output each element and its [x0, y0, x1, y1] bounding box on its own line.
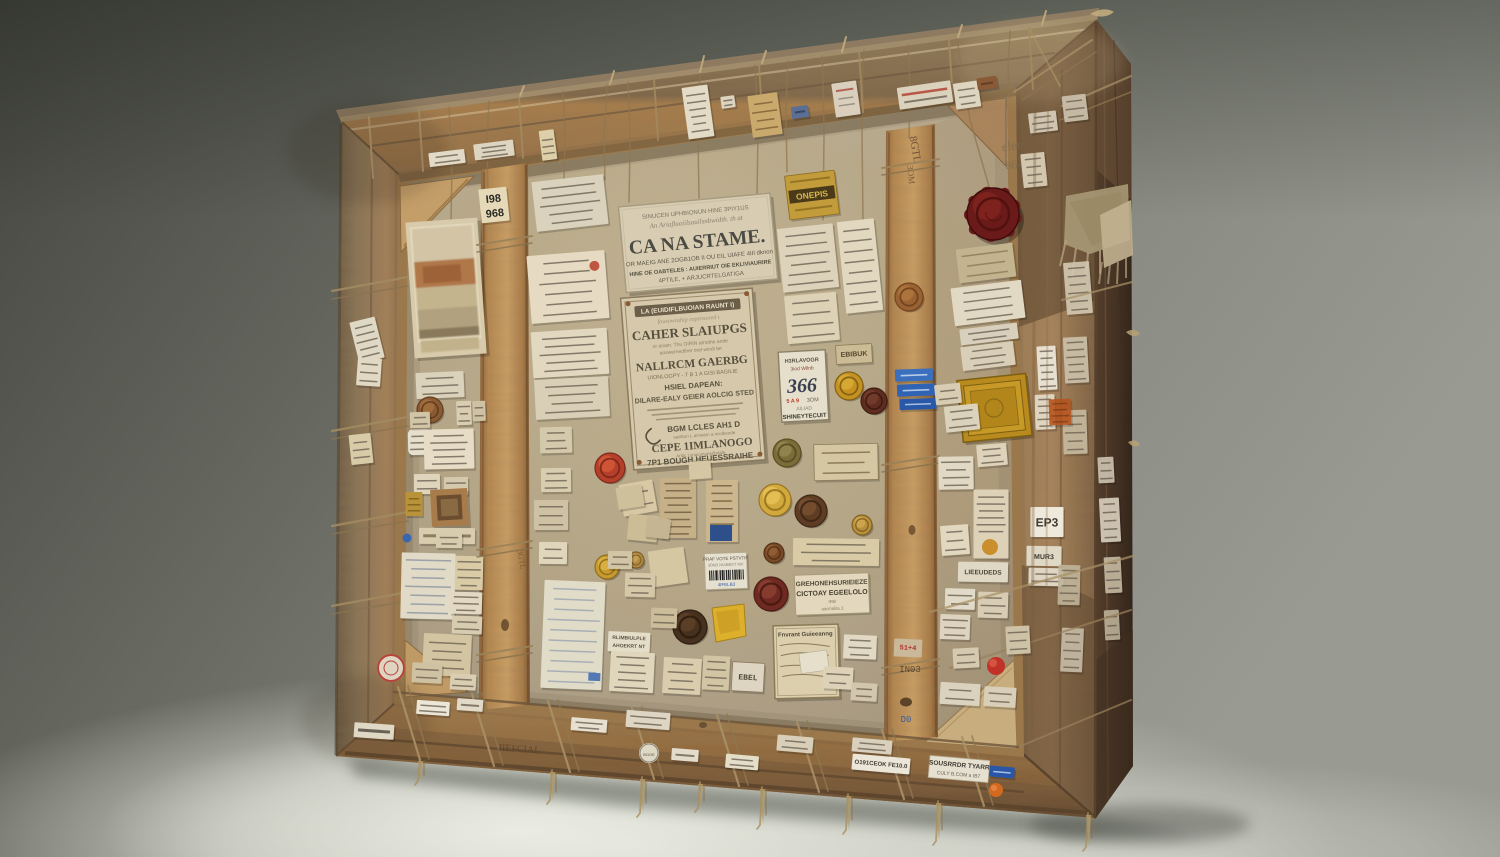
svg-text:EBIBUK: EBIBUK: [840, 351, 867, 359]
svg-text:EBEL: EBEL: [738, 673, 758, 683]
svg-text:4IFELB3: 4IFELB3: [718, 582, 736, 588]
svg-text:51+4: 51+4: [899, 644, 916, 653]
svg-text:3OM: 3OM: [807, 397, 820, 404]
svg-text:366: 366: [785, 374, 817, 398]
svg-text:LIEEUDEDS: LIEEUDEDS: [964, 569, 1002, 577]
svg-text:AILIAD: AILIAD: [796, 406, 813, 413]
svg-text:968: 968: [485, 207, 505, 221]
svg-text:3OM: 3OM: [905, 165, 917, 185]
svg-text:BOOE: BOOE: [643, 752, 655, 757]
svg-text:D0: D0: [901, 715, 912, 725]
svg-text:MUR3: MUR3: [1034, 554, 1054, 561]
svg-text:IN03: IN03: [899, 665, 921, 675]
svg-text:I98: I98: [485, 193, 501, 207]
svg-text:IRB: IRB: [828, 599, 836, 604]
svg-text:5 A 9: 5 A 9: [786, 398, 799, 405]
svg-text:3iod Wllnb: 3iod Wllnb: [790, 365, 814, 372]
svg-text:eler: eler: [1001, 137, 1023, 155]
svg-text:aarmalila 3: aarmalila 3: [821, 606, 844, 612]
